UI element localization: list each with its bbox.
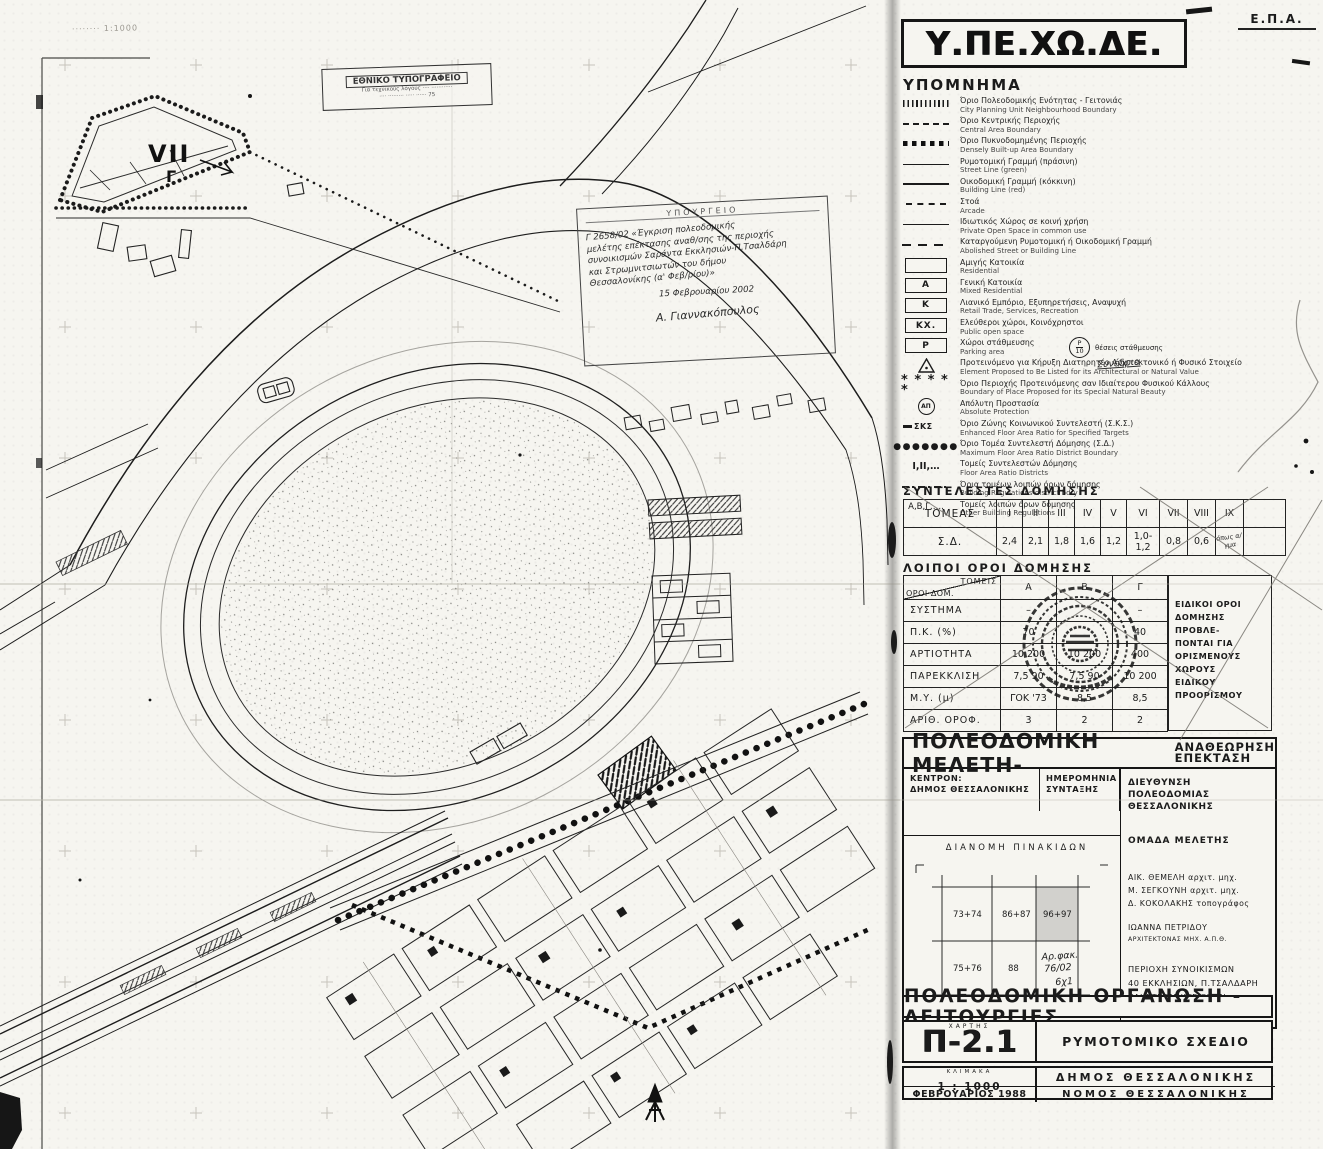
study-title: ΠΟΛΕΟΔΟΜΙΚΗ ΜΕΛΕΤΗ- ΑΝΑΘΕΩΡΗΣΗΕΠΕΚΤΑΣΗ bbox=[904, 739, 1275, 769]
far-district-boundary-icon: ●●●●●●● bbox=[901, 440, 951, 453]
approval-signature: Α. Γιαννακόπουλος bbox=[591, 296, 825, 329]
legend-item: Όριο Πολεοδομικής Ενότητας - ΓειτονιάςCi… bbox=[901, 97, 1301, 114]
central-area-boundary-icon bbox=[901, 117, 951, 130]
team-members: ΑΙΚ. ΘΕΜΕΛΗ αρχιτ. μηχ.Μ. ΣΕΓΚΟΥΝΗ αρχιτ… bbox=[1128, 871, 1270, 910]
street-line-icon bbox=[901, 158, 951, 171]
parking-zone-icon: Ρ bbox=[901, 339, 951, 352]
loipoi-table-title: ΛΟΙΠΟΙ ΟΡΟΙ ΔΟΜΗΣΗΣ bbox=[903, 561, 1093, 575]
map-code: Π-2.1 bbox=[904, 1030, 1035, 1056]
legend-item: ΚΧ. Ελεύθεροι χώροι, ΚοινόχρηστοιPublic … bbox=[901, 319, 1301, 336]
legend-item: Όριο Κεντρικής ΠεριοχήςCentral Area Boun… bbox=[901, 117, 1301, 134]
legend-item: Αμιγής ΚατοικίαResidential bbox=[901, 259, 1301, 276]
scale-cell: ΚΛΙΜΑΚΑ1 : 1000 bbox=[904, 1068, 1037, 1087]
sd-table: ΤΟΜΕΑΣ I II III IV V VI VII VIII IX Σ.Δ.… bbox=[903, 499, 1286, 556]
legend-item: ΣτοάArcade bbox=[901, 198, 1301, 215]
study-center-cell: ΚΕΝΤΡΟΝ:ΔΗΜΟΣ ΘΕΣΣΑΛΟΝΙΚΗΣ bbox=[904, 769, 1040, 811]
agency-title: Υ.ΠΕ.ΧΩ.ΔΕ. bbox=[926, 24, 1163, 63]
printing-office-stamp: ΕΘΝΙΚΟ ΤΥΠΟΓΡΑΦΕΙΟ Για τεχνικούς λόγους … bbox=[321, 63, 492, 111]
faint-scale-note: ········ 1:1000 bbox=[72, 23, 138, 33]
prefecture-cell: ΝΟΜΟΣ ΘΕΣΣΑΛΟΝΙΚΗΣ bbox=[1037, 1087, 1275, 1102]
svg-text:75+76: 75+76 bbox=[953, 964, 982, 974]
study-divider-h bbox=[904, 835, 1120, 836]
approval-handwritten-text: Γ 2658/02 «Έγκριση πολεοδομικής μελέτης … bbox=[585, 213, 823, 291]
loipoi-corner-cell: ΤΟΜΕΙΣΟΡΟΙ ΔΟΜ. bbox=[904, 576, 1000, 599]
date-cell: ΦΕΒΡΟΥΑΡΙΟΣ 1988 bbox=[904, 1087, 1037, 1102]
legend-item: ΣΚΣ Όριο Ζώνης Κοινωνικού Συντελεστή (Σ.… bbox=[901, 420, 1301, 437]
org-title: ΠΟΛΕΟΔΟΜΙΚΗ ΟΡΓΑΝΩΣΗ - ΛΕΙΤΟΥΡΓΙΕΣ bbox=[902, 995, 1273, 1018]
sd-ix-handwritten: όπως α/γμα bbox=[1215, 531, 1244, 551]
building-line-icon bbox=[901, 178, 951, 191]
private-open-space-icon bbox=[901, 218, 951, 231]
absolute-protection-icon: ΑΠ bbox=[901, 400, 951, 413]
legend-item: Ιδιωτικός Χώρος σε κοινή χρήσηPrivate Op… bbox=[901, 218, 1301, 235]
extra-member: ΙΩΑΝΝΑ ΠΕΤΡΙΔΟΥ ΑΡΧΙΤΕΚΤΟΝΑΣ ΜΗΧ. Α.Π.Θ. bbox=[1128, 922, 1270, 946]
social-far-zone-icon: ΣΚΣ bbox=[901, 420, 951, 433]
org-scale-rows: ΚΛΙΜΑΚΑ1 : 1000 ΔΗΜΟΣ ΘΕΣΣΑΛΟΝΙΚΗΣ ΦΕΒΡΟ… bbox=[902, 1066, 1273, 1100]
parking-ratio-icon: Ρ10 θέσεις στάθμευσης bbox=[1069, 337, 1163, 358]
sd-table-title: ΣΥΝΤΕΛΕΣΤΕΣ ΔΟΜΗΣΗΣ bbox=[903, 484, 1100, 498]
municipality-cell: ΔΗΜΟΣ ΘΕΣΣΑΛΟΝΙΚΗΣ bbox=[1037, 1068, 1275, 1087]
far-districts-label-icon: Ι,ΙΙ,… bbox=[901, 460, 951, 473]
svg-text:Αρ.φακ.: Αρ.φακ. bbox=[1040, 950, 1078, 964]
listed-element-icon bbox=[901, 359, 951, 372]
map-type: ΡΥΜΟΤΟΜΙΚΟ ΣΧΕΔΙΟ bbox=[1037, 1022, 1275, 1061]
org-main-row: ΧΑΡΤΗΣ Π-2.1 ΡΥΜΟΤΟΜΙΚΟ ΣΧΕΔΙΟ bbox=[902, 1020, 1273, 1063]
legend-item: Ι,ΙΙ,… Τομείς Συντελεστών ΔόμησηςFloor A… bbox=[901, 460, 1301, 477]
legend-title: ΥΠΟΜΝΗΜΑ bbox=[903, 76, 1022, 94]
approval-stamp: ΥΠΟΥΡΓΕΙΟ Γ 2658/02 «Έγκριση πολεοδομική… bbox=[576, 196, 836, 367]
residential-zone-icon bbox=[901, 259, 951, 272]
svg-text:Γ: Γ bbox=[166, 167, 176, 186]
arcade-line-icon bbox=[901, 198, 951, 211]
svg-text:76/02: 76/02 bbox=[1044, 962, 1072, 975]
neighbourhood-boundary-icon bbox=[901, 97, 951, 110]
svg-text:86+87: 86+87 bbox=[1002, 910, 1031, 920]
legend-item: * * * * * Όριο Περιοχής Προτεινόμενης σα… bbox=[901, 380, 1301, 397]
legend-item: Κ Λιανικό Εμπόριο, Εξυπηρετήσεις, Αναψυχ… bbox=[901, 299, 1301, 316]
svg-text:73+74: 73+74 bbox=[953, 910, 982, 920]
plate-distribution-label: ΔΙΑΝΟΜΗ ΠΙΝΑΚΙΔΩΝ bbox=[922, 843, 1112, 853]
city-plan-map: VII Γ bbox=[0, 0, 900, 1149]
svg-text:88: 88 bbox=[1008, 964, 1019, 974]
svg-text:VII: VII bbox=[148, 140, 190, 168]
abolished-line-icon bbox=[901, 238, 951, 251]
legend-item: Α Γενική ΚατοικίαMixed Residential bbox=[901, 279, 1301, 296]
legend-item-parking: Ρ Χώροι στάθμευσηςParking area Ρ10 θέσει… bbox=[901, 339, 1301, 356]
mixed-residential-zone-icon: Α bbox=[901, 279, 951, 292]
public-open-space-zone-icon: ΚΧ. bbox=[901, 319, 951, 332]
svg-text:96+97: 96+97 bbox=[1043, 910, 1072, 920]
round-ink-stamp bbox=[1018, 582, 1142, 706]
team-label: ΟΜΑΔΑ ΜΕΛΕΤΗΣ bbox=[1128, 835, 1270, 847]
legend-item: Καταργούμενη Ρυμοτομική ή Οικοδομική Γρα… bbox=[901, 238, 1301, 255]
study-title-sub: ΑΝΑΘΕΩΡΗΣΗΕΠΕΚΤΑΣΗ bbox=[1175, 742, 1275, 764]
legend: Όριο Πολεοδομικής Ενότητας - ΓειτονιάςCi… bbox=[901, 97, 1301, 521]
study-right-column: ΔΙΕΥΘΥΝΣΗ ΠΟΛΕΟΔΟΜΙΑΣ ΘΕΣΣΑΛΟΝΙΚΗΣ ΟΜΑΔΑ… bbox=[1128, 777, 1270, 1004]
epa-label: Ε.Π.Α. bbox=[1238, 12, 1316, 30]
legend-item: Ρυμοτομική Γραμμή (πράσινη)Street Line (… bbox=[901, 158, 1301, 175]
study-date-cell: ΗΜΕΡΟΜΗΝΙΑΣΥΝΤΑΞΗΣ bbox=[1040, 769, 1120, 811]
legend-item: Όριο Πυκνοδομημένης ΠεριοχήςDensely Buil… bbox=[901, 137, 1301, 154]
legend-item: ●●●●●●● Όριο Τομέα Συντελεστή Δόμησης (Σ… bbox=[901, 440, 1301, 457]
retail-zone-icon: Κ bbox=[901, 299, 951, 312]
scanned-urban-plan-sheet: VII Γ bbox=[0, 0, 1323, 1149]
legend-item: Οικοδομική Γραμμή (κόκκινη)Building Line… bbox=[901, 178, 1301, 195]
densely-built-boundary-icon bbox=[901, 137, 951, 150]
natural-beauty-boundary-icon: * * * * * bbox=[901, 380, 951, 393]
plate-grid-handwriting: Αρ.φακ. 76/02 6χ1 bbox=[1040, 950, 1080, 990]
legend-item: ΑΠ Απόλυτη ΠροστασίαAbsolute Protection bbox=[901, 400, 1301, 417]
loipoi-side-note: ΕΙΔΙΚΟΙ ΟΡΟΙΔΟΜΗΣΗΣ ΠΡΟΒΛΕ- ΠΟΝΤΑΙ ΓΙΑΟΡ… bbox=[1168, 575, 1272, 731]
agency-header-box: Υ.ΠΕ.ΧΩ.ΔΕ. bbox=[901, 19, 1187, 68]
map-code-cell: ΧΑΡΤΗΣ Π-2.1 bbox=[904, 1022, 1037, 1061]
